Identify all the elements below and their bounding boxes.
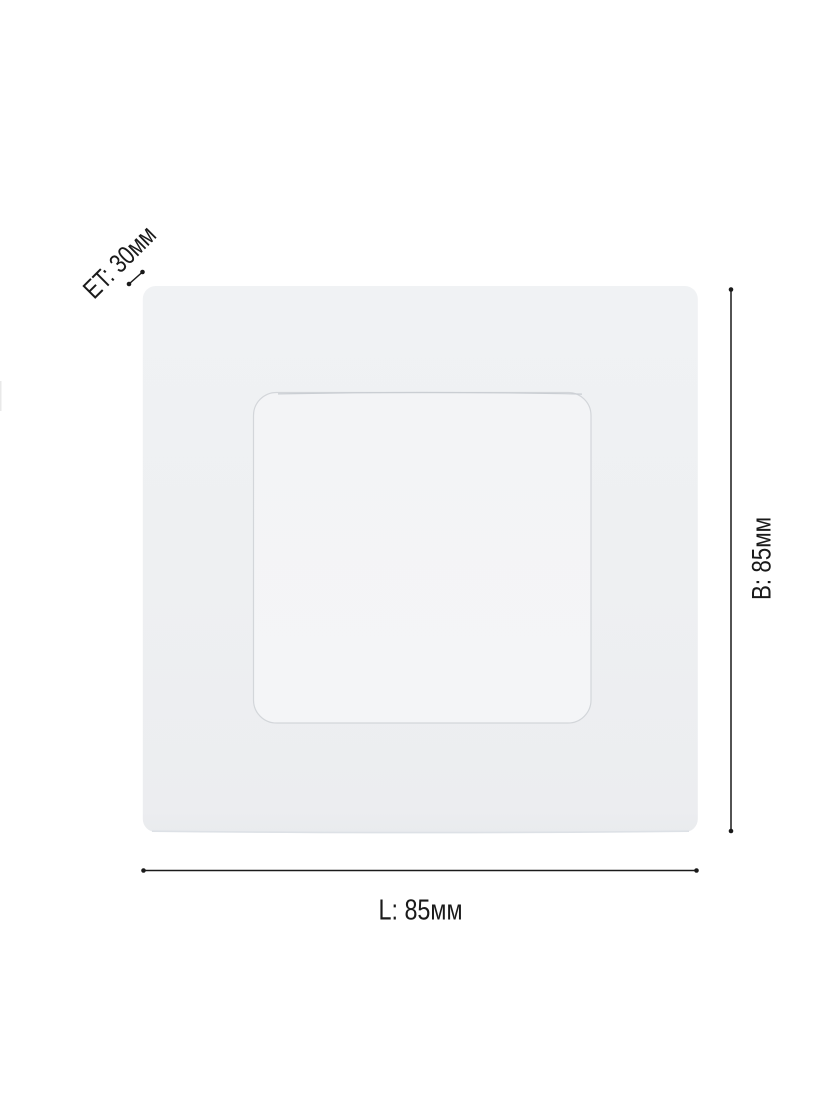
svg-text:L: 85мм: L: 85мм: [379, 895, 463, 927]
svg-text:B: 85мм: B: 85мм: [746, 517, 776, 600]
